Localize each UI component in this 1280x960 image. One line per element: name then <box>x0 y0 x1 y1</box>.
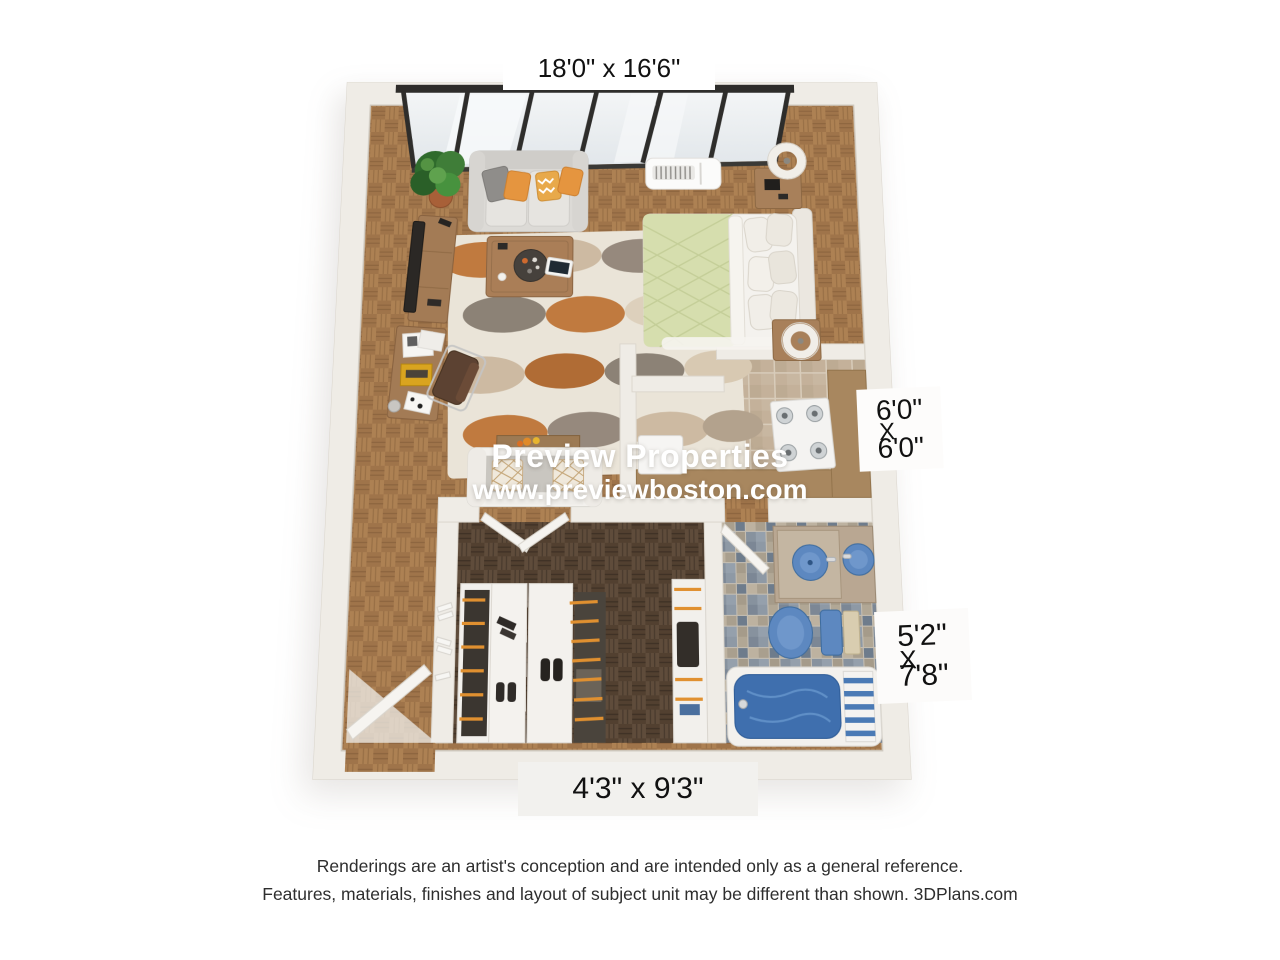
dimension-label-main-room: 18'0" x 16'6" <box>503 46 715 90</box>
bathroom-depth: 7'8" <box>898 658 949 694</box>
dishwasher <box>638 436 683 474</box>
coffee-table <box>486 236 573 296</box>
wardrobe-left <box>457 584 527 743</box>
tablet <box>545 257 573 278</box>
wardrobe-divider <box>527 584 573 743</box>
dimension-label-closet: 4'3" x 9'3" <box>518 762 758 816</box>
floorplan-3d-view <box>312 82 911 780</box>
shoes <box>496 682 505 702</box>
bed-pillows <box>743 213 800 331</box>
nightstand-bottom <box>772 320 821 361</box>
towel <box>843 611 860 654</box>
dimension-label-kitchen: 6'0" X 6'0" <box>856 386 943 472</box>
kitchen-depth: 6'0" <box>877 431 925 465</box>
wardrobe-right <box>672 579 708 742</box>
main-room-dimensions: 18'0" x 16'6" <box>538 53 681 84</box>
disclaimer-line-1: Renderings are an artist's conception an… <box>0 856 1280 877</box>
bathtub <box>726 667 882 746</box>
desk <box>387 326 446 421</box>
closet-dimensions: 4'3" x 9'3" <box>572 772 703 806</box>
decor-tray <box>514 249 548 281</box>
garment-bag <box>677 622 700 667</box>
wall-ac-unit <box>646 158 722 189</box>
stove <box>770 398 836 472</box>
dimension-label-bathroom: 5'2" X 7'8" <box>874 608 972 704</box>
striped-towels <box>843 671 876 741</box>
vanity <box>773 526 876 602</box>
floorplan-page: 18'0" x 16'6" 6'0" X 6'0" 5'2" X 7'8" 4'… <box>0 0 1280 960</box>
floorplan-rendering <box>312 82 911 780</box>
disclaimer-line-2: Features, materials, finishes and layout… <box>0 884 1280 905</box>
sofa <box>468 151 588 232</box>
shoes-pair <box>540 658 550 681</box>
bed-blanket <box>643 214 745 347</box>
